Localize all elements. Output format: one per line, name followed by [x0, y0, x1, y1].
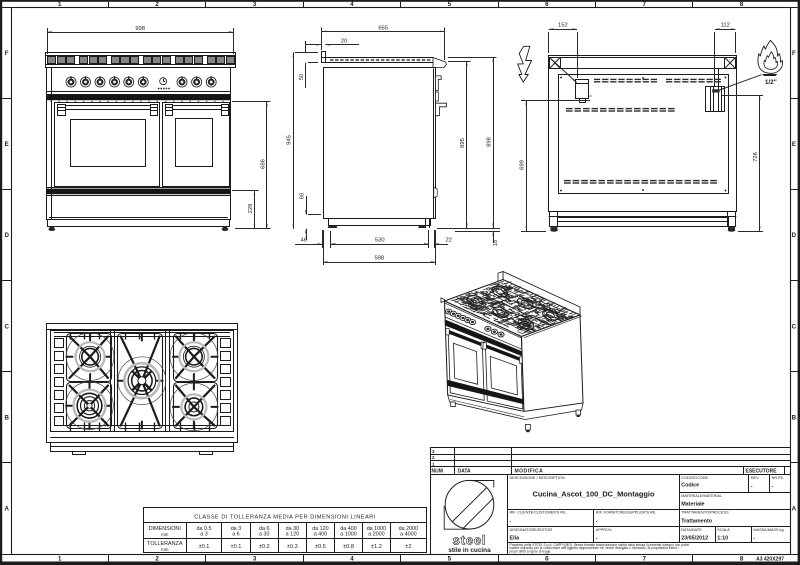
svg-text:8: 8 — [740, 1, 744, 8]
svg-text:±0.2: ±0.2 — [259, 544, 270, 550]
svg-text:D: D — [4, 232, 9, 239]
svg-text:C: C — [4, 323, 9, 330]
svg-text:NUM: NUM — [432, 469, 443, 475]
svg-text:1: 1 — [432, 461, 435, 466]
svg-text:-: - — [596, 519, 598, 525]
svg-text:22: 22 — [446, 238, 452, 244]
svg-text:726: 726 — [753, 152, 759, 162]
svg-text:112: 112 — [721, 23, 730, 29]
svg-text:±0.5: ±0.5 — [315, 544, 326, 550]
svg-text:945: 945 — [287, 135, 293, 145]
svg-text:MODIFICA: MODIFICA — [515, 469, 544, 475]
svg-text:Cucina_Ascot_100_DC_Montaggio: Cucina_Ascot_100_DC_Montaggio — [533, 489, 655, 498]
svg-text:2: 2 — [155, 556, 159, 563]
svg-text:A: A — [4, 506, 9, 513]
svg-text:APPROV.: APPROV. — [596, 528, 613, 532]
svg-text:B: B — [792, 414, 797, 421]
svg-text:686: 686 — [260, 159, 266, 169]
svg-text:MASSA/MASS kg: MASSA/MASS kg — [753, 528, 783, 532]
svg-text:18: 18 — [493, 240, 499, 246]
svg-text:898: 898 — [487, 137, 493, 147]
svg-text:DATA: DATA — [458, 469, 472, 475]
svg-text:-: - — [596, 536, 598, 542]
svg-text:RIF. CLIENTE/CUSTOMER'S RE.: RIF. CLIENTE/CUSTOMER'S RE. — [510, 511, 567, 515]
svg-text:a 1000: a 1000 — [340, 532, 357, 538]
svg-text:5: 5 — [448, 556, 452, 563]
svg-text:5: 5 — [448, 1, 452, 8]
svg-text:Codice: Codice — [681, 483, 699, 489]
svg-text:1: 1 — [58, 556, 62, 563]
svg-text:1: 1 — [58, 1, 62, 8]
svg-text:68: 68 — [299, 193, 305, 199]
svg-text:DESCRIZIONE / DESCRIPTION: DESCRIZIONE / DESCRIPTION — [510, 476, 565, 480]
svg-text:±0.8: ±0.8 — [343, 544, 354, 550]
svg-text:598: 598 — [374, 256, 384, 262]
svg-text:mm: mm — [161, 532, 169, 537]
svg-text:a: a — [590, 94, 592, 98]
svg-text:E: E — [5, 141, 9, 148]
svg-text:a 120: a 120 — [286, 532, 300, 538]
svg-text:±1.2: ±1.2 — [371, 544, 382, 550]
svg-text:4: 4 — [350, 556, 354, 563]
svg-text:a 400: a 400 — [314, 532, 328, 538]
svg-text:Elia: Elia — [510, 536, 521, 542]
svg-text:SCALA: SCALA — [717, 528, 730, 532]
svg-text:-: - — [510, 519, 512, 525]
svg-text:A: A — [792, 506, 797, 513]
svg-text:a 3: a 3 — [200, 532, 208, 538]
svg-text:2: 2 — [432, 455, 435, 460]
svg-text:-: - — [753, 536, 755, 542]
svg-text:ESECUTORE: ESECUTORE — [746, 469, 778, 475]
svg-text:1:10: 1:10 — [717, 536, 728, 542]
svg-text:1/2": 1/2" — [765, 79, 777, 86]
svg-text:NR.PZ.: NR.PZ. — [772, 476, 784, 480]
svg-text:steel: steel — [453, 533, 487, 548]
svg-text:F: F — [792, 50, 796, 57]
svg-text:E: E — [792, 141, 796, 148]
svg-text:mm: mm — [161, 547, 169, 552]
svg-text:DIMENSIONI: DIMENSIONI — [149, 526, 181, 532]
svg-text:895: 895 — [460, 138, 466, 148]
svg-text:6: 6 — [545, 556, 549, 563]
svg-text:23/05/2012: 23/05/2012 — [681, 536, 708, 542]
svg-text:3: 3 — [432, 449, 435, 454]
svg-text:DISEGNATORE/EDITOR: DISEGNATORE/EDITOR — [510, 528, 553, 532]
svg-text:F: F — [5, 50, 9, 57]
svg-text:7: 7 — [643, 556, 647, 563]
svg-text:RIF. FORNITORE/SUPPLIER'S RE.: RIF. FORNITORE/SUPPLIER'S RE. — [596, 511, 657, 515]
svg-text:50: 50 — [299, 74, 305, 80]
svg-text:a 2000: a 2000 — [368, 532, 385, 538]
svg-text:4: 4 — [350, 1, 354, 8]
svg-text:3: 3 — [253, 1, 257, 8]
svg-text:-: - — [751, 484, 753, 490]
svg-text:46: 46 — [301, 238, 307, 244]
svg-text:-: - — [772, 484, 774, 490]
svg-text:CODICE/CODE: CODICE/CODE — [681, 476, 708, 480]
svg-text:998: 998 — [135, 26, 145, 32]
svg-text:6: 6 — [545, 1, 549, 8]
svg-text:REV.: REV. — [751, 476, 760, 480]
svg-text:D: D — [792, 232, 797, 239]
svg-text:B: B — [4, 414, 9, 421]
svg-text:a 6: a 6 — [232, 532, 240, 538]
svg-text:stile in cucina: stile in cucina — [448, 547, 491, 554]
svg-text:±0.1: ±0.1 — [199, 544, 210, 550]
svg-text:Trattamento: Trattamento — [681, 519, 713, 525]
svg-text:±2: ±2 — [405, 544, 411, 550]
svg-text:DATA/DATE: DATA/DATE — [681, 528, 702, 532]
svg-text:MATERIALE/MATERIAL: MATERIALE/MATERIAL — [681, 494, 722, 498]
svg-text:a 30: a 30 — [259, 532, 270, 538]
svg-text:A3 420X297: A3 420X297 — [756, 557, 784, 563]
svg-text:Materiale: Materiale — [681, 502, 704, 508]
svg-text:±0.3: ±0.3 — [287, 544, 298, 550]
svg-text:TRATTAMENTO/PROCESS: TRATTAMENTO/PROCESS — [681, 511, 729, 515]
svg-text:228: 228 — [248, 204, 254, 214]
svg-text:7: 7 — [643, 1, 647, 8]
svg-text:3: 3 — [253, 556, 257, 563]
svg-text:152: 152 — [558, 23, 568, 29]
svg-text:CLASSE DI TOLLERANZA MEDIA PER: CLASSE DI TOLLERANZA MEDIA PER DIMENSION… — [194, 514, 376, 520]
svg-text:a 4000: a 4000 — [400, 532, 417, 538]
svg-text:699: 699 — [520, 160, 526, 170]
svg-text:8: 8 — [740, 556, 744, 563]
svg-text:±0.1: ±0.1 — [231, 544, 242, 550]
svg-text:2: 2 — [155, 1, 159, 8]
svg-text:C: C — [792, 323, 797, 330]
svg-text:655: 655 — [378, 25, 388, 31]
svg-text:propri diritti a rigore di leg: propri diritti a rigore di legge. — [510, 550, 552, 554]
svg-text:530: 530 — [375, 238, 385, 244]
svg-text:20: 20 — [341, 38, 347, 44]
